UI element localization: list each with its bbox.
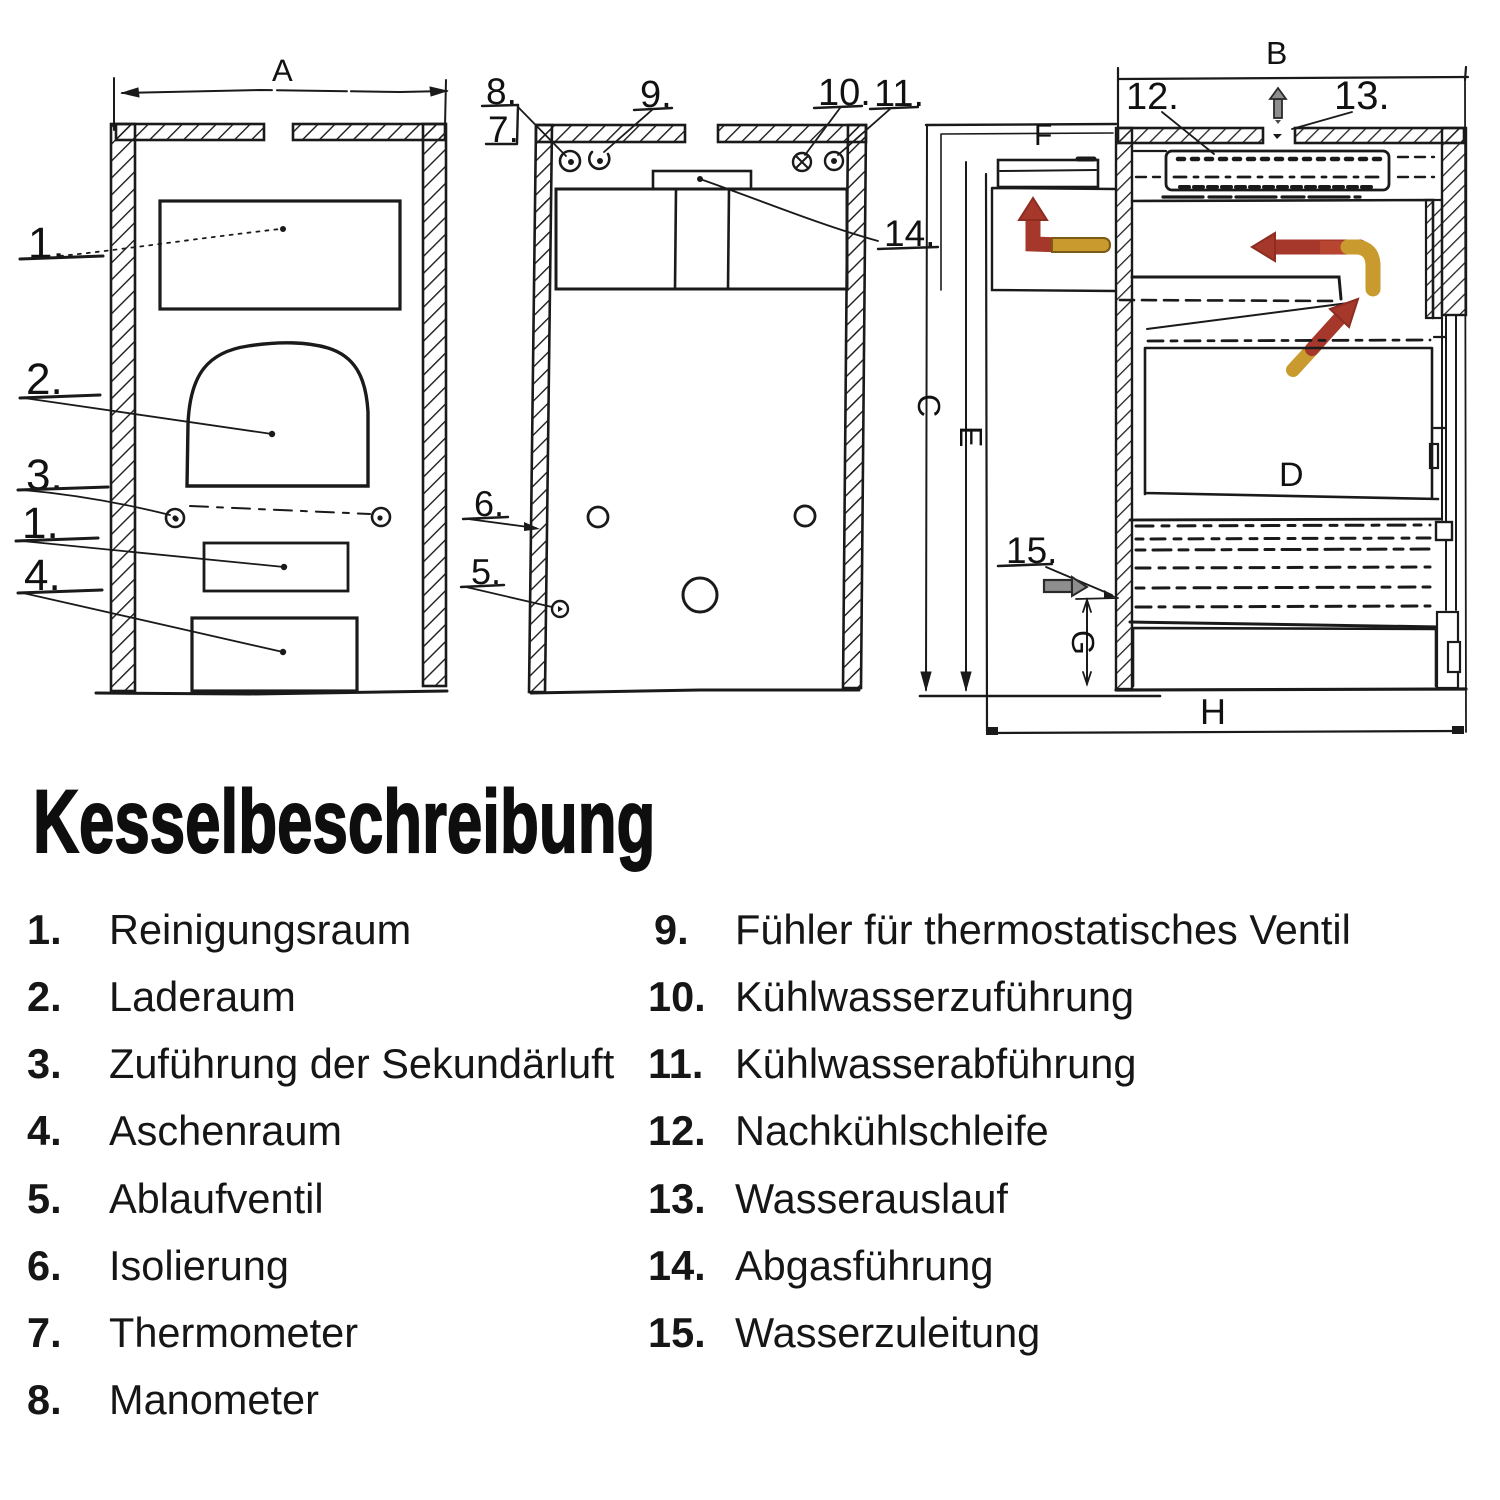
- svg-text:E: E: [953, 426, 989, 447]
- svg-text:1.: 1.: [28, 219, 65, 268]
- svg-text:13.: 13.: [1334, 74, 1390, 118]
- svg-text:G: G: [1065, 630, 1101, 655]
- svg-text:12.: 12.: [1126, 76, 1179, 118]
- svg-text:H: H: [1200, 691, 1226, 732]
- svg-text:A: A: [272, 53, 293, 88]
- svg-text:F: F: [1034, 119, 1052, 152]
- svg-text:D: D: [1279, 456, 1304, 494]
- svg-text:B: B: [1266, 35, 1287, 71]
- svg-text:C: C: [911, 394, 947, 417]
